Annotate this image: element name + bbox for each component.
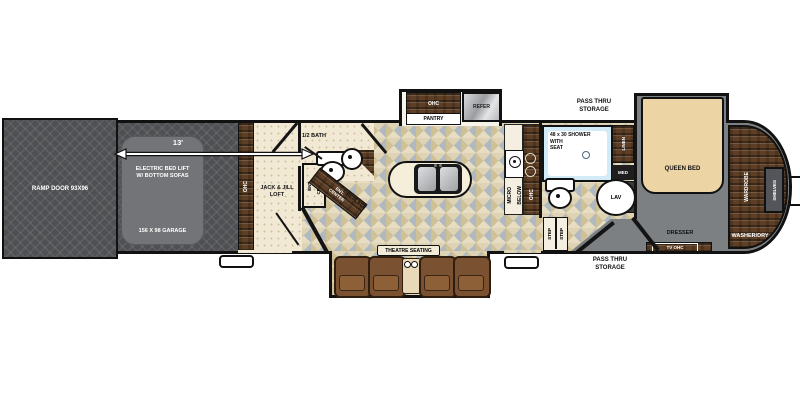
shower: 48 x 30 SHOWER WITH SEAT: [542, 125, 613, 182]
shower-label: 48 x 30 SHOWER WITH SEAT: [550, 132, 608, 152]
micro-label: MICRO: [507, 187, 513, 204]
pantry-refer-slide: OHC PANTRY REFER: [399, 89, 502, 126]
pantry-label: PANTRY: [424, 116, 444, 122]
lav-sink: LAV: [596, 179, 636, 216]
ramp-door: RAMP DOOR 93X96: [2, 118, 118, 259]
linen-label-wrap: LINEN: [612, 127, 634, 161]
kitchen-ohc-label-wrap: OHC: [526, 181, 538, 209]
refer-label: REFER: [473, 104, 490, 110]
pass-thru-storage-bottom: PASS THRU STORAGE: [576, 257, 644, 272]
step-label-2: STEP: [559, 228, 564, 240]
queen-bed: [641, 97, 724, 194]
burner-icon: [525, 153, 536, 164]
tv-ohc-label: TV OHC: [666, 245, 683, 250]
theatre-slide: [329, 251, 490, 298]
below-label-wrap: BELOW: [515, 179, 525, 211]
shelves-label: SHELVES: [772, 180, 777, 201]
entry-step: [219, 255, 254, 268]
wall-diagonal: [301, 206, 331, 254]
theatre-seat: [368, 256, 406, 298]
lav-label: LAV: [611, 195, 622, 201]
wall: [539, 123, 542, 218]
shower-drain: [582, 151, 590, 159]
queen-bed-label: QUEEN BED: [641, 166, 724, 174]
linen-label: LINEN: [621, 137, 626, 151]
med-label: MED: [618, 170, 628, 175]
wardrobe-label-wrap: WARDROBE: [740, 157, 754, 217]
pass-thru-storage-top: PASS THRU STORAGE: [560, 99, 628, 114]
interior-steps: STEP STEP: [543, 217, 568, 251]
pantry-ohc: OHC: [406, 92, 461, 115]
micro-label-wrap: MICRO: [505, 179, 515, 211]
floorplan-canvas: RAMP DOOR 93X96 ELECTRIC BED LIFT W/ BOT…: [0, 0, 800, 400]
pantry-ohc-label: OHC: [428, 101, 439, 107]
theatre-seating-labelbox: THEATRE SEATING: [377, 245, 440, 256]
pantry: PANTRY: [406, 113, 461, 125]
theatre-seat: [453, 256, 491, 298]
theatre-seat: [334, 256, 372, 298]
ramp-door-label: RAMP DOOR 93X96: [32, 186, 88, 192]
below-label: BELOW: [517, 186, 523, 205]
island-sink: [414, 164, 462, 194]
wardrobe-label: WARDROBE: [744, 172, 750, 202]
burner-icon: [525, 166, 536, 177]
garage-dimension-label: 13': [166, 138, 190, 147]
dresser-label: DRESSER: [640, 230, 720, 237]
bed-lift-label: ELECTRIC BED LIFT W/ BOTTOM SOFAS: [122, 166, 203, 180]
theatre-seating-label: THEATRE SEATING: [385, 248, 431, 254]
kitchen-door-threshold: [504, 253, 541, 254]
garage-size-label: 156 X 98 GARAGE: [122, 228, 203, 235]
half-bath-label: 1/2 BATH: [287, 133, 341, 140]
entry-door-threshold: [238, 253, 292, 254]
wall: [298, 166, 301, 211]
entry-step: [504, 256, 539, 269]
shelves: SHELVES: [764, 167, 784, 213]
wall: [634, 123, 637, 219]
medicine-cabinet: MED: [612, 165, 634, 180]
half-bath-sink: [341, 148, 363, 170]
washer-dry-label: WASHER/DRY: [710, 233, 790, 240]
theatre-seat: [419, 256, 457, 298]
dimension-arrow: [114, 146, 314, 162]
kitchen-ohc-label: OHC: [529, 189, 535, 200]
bath-toilet-bowl: [548, 187, 572, 209]
refrigerator: REFER: [462, 92, 501, 122]
step-label-1: STEP: [547, 228, 552, 240]
